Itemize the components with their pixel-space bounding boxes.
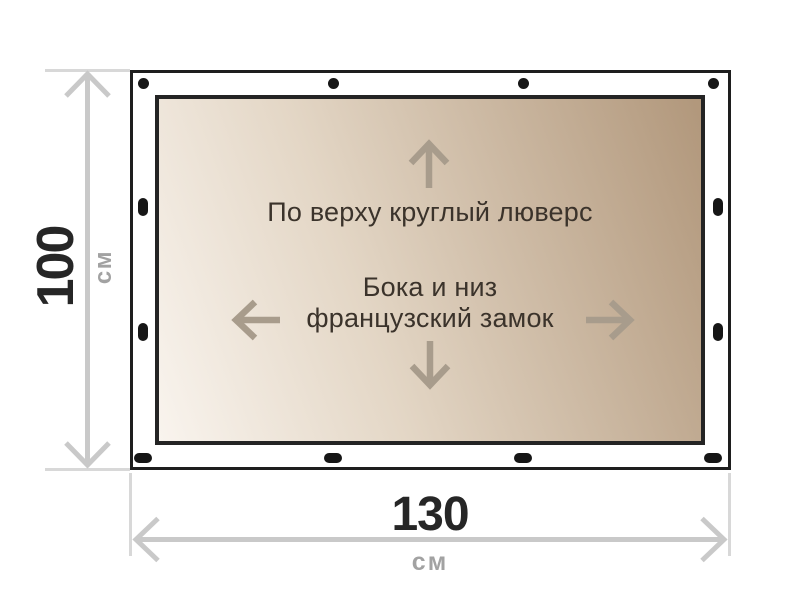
lock-slot-icon bbox=[713, 198, 723, 216]
grommet-icon bbox=[518, 78, 529, 89]
lock-slot-icon bbox=[514, 453, 532, 463]
lock-slot-icon bbox=[138, 323, 148, 341]
grommet-icon bbox=[328, 78, 339, 89]
annotation-sides-line1: Бока и низ bbox=[159, 272, 701, 303]
product-dimension-diagram: По верху круглый люверс Бока и низ франц… bbox=[0, 0, 800, 600]
up-arrow-icon bbox=[407, 135, 451, 189]
height-unit: см bbox=[89, 227, 119, 307]
grommet-icon bbox=[708, 78, 719, 89]
lock-slot-icon bbox=[324, 453, 342, 463]
annotation-top-grommets: По верху круглый люверс bbox=[159, 197, 701, 228]
width-unit: см bbox=[330, 548, 530, 577]
lock-slot-icon bbox=[704, 453, 722, 463]
lock-slot-icon bbox=[134, 453, 152, 463]
width-value: 130 bbox=[330, 487, 530, 542]
grommet-icon bbox=[138, 78, 149, 89]
annotation-sides-line2: французский замок bbox=[159, 303, 701, 334]
height-value: 100 bbox=[26, 182, 86, 352]
lock-slot-icon bbox=[138, 198, 148, 216]
lock-slot-icon bbox=[713, 323, 723, 341]
down-arrow-icon bbox=[408, 340, 452, 394]
